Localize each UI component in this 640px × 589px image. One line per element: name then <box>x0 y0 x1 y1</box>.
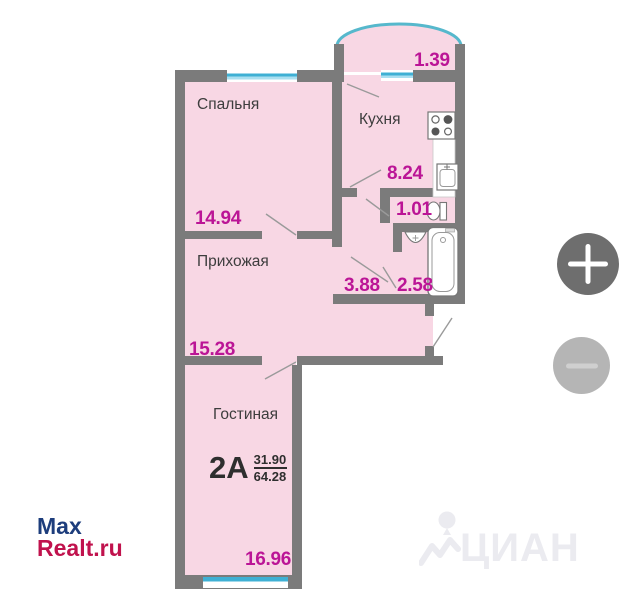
apartment-area-fraction: 31.90 64.28 <box>254 453 288 483</box>
hallway-label: Прихожая <box>197 253 269 271</box>
wall <box>175 70 227 82</box>
wall <box>342 188 357 197</box>
entry-door-line <box>433 318 452 347</box>
bedroom-area-value: 14.94 <box>195 208 241 230</box>
maxrealt-logo-line1: Max <box>37 515 123 537</box>
wall <box>175 70 185 589</box>
balcony-area-value: 1.39 <box>414 50 450 72</box>
corridor-area-value: 3.88 <box>344 275 380 297</box>
kitchen-area-value: 8.24 <box>387 163 423 185</box>
wc-area-value: 1.01 <box>396 199 432 221</box>
cian-pin-icon <box>419 507 461 567</box>
plus-icon <box>586 244 591 284</box>
apartment-type: 2А <box>209 453 249 483</box>
bedroom-window <box>227 70 297 82</box>
room-fill <box>297 304 433 357</box>
wall <box>393 223 402 252</box>
maxrealt-logo-line2: Realt.ru <box>37 537 123 559</box>
wall <box>297 231 335 239</box>
kitchen-label: Кухня <box>359 111 400 129</box>
stove-icon <box>428 112 455 139</box>
cian-watermark: ЦИАН <box>419 507 461 572</box>
living-area-total-value: 31.90 <box>254 453 288 469</box>
kitchen-sink-icon <box>437 164 458 190</box>
zoom-in-button[interactable] <box>557 233 619 295</box>
hallway-area-value: 15.28 <box>189 339 235 361</box>
minus-icon <box>566 363 598 368</box>
wall <box>455 44 465 72</box>
wall <box>297 356 443 365</box>
wall <box>380 188 390 223</box>
bathroom-area-value: 2.58 <box>397 275 433 297</box>
floorplan-drawing <box>0 0 640 589</box>
wall <box>292 365 302 589</box>
wall <box>334 44 344 72</box>
living-room-label: Гостиная <box>213 406 278 424</box>
floorplan-image: Спальня Кухня Прихожая Гостиная 1.39 14.… <box>0 0 640 589</box>
wall <box>332 70 342 247</box>
maxrealt-logo: Max Realt.ru <box>37 515 123 559</box>
bedroom-label: Спальня <box>197 96 259 114</box>
wall <box>425 304 434 316</box>
zoom-out-button[interactable] <box>553 337 610 394</box>
apartment-label: 2А 31.90 64.28 <box>209 453 287 483</box>
balcony-window <box>381 70 413 81</box>
cian-watermark-text: ЦИАН <box>460 530 580 566</box>
wall <box>425 346 434 356</box>
living-room-area-value: 16.96 <box>245 549 291 571</box>
wall <box>185 231 262 239</box>
living-room-window <box>203 577 288 588</box>
total-area-value: 64.28 <box>254 469 288 483</box>
